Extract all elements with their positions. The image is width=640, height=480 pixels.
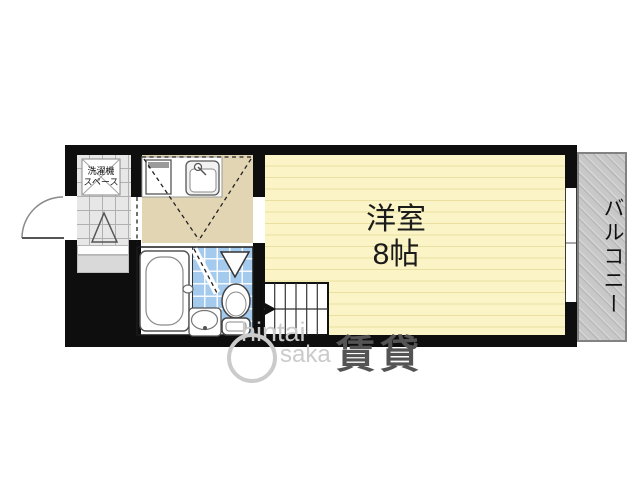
laundry-label-line1: 洗濯機 xyxy=(87,166,114,177)
main-room-name: 洋室 xyxy=(290,202,502,237)
wall-genkan-kitchen xyxy=(131,145,142,197)
wall-bath-left xyxy=(129,240,141,335)
kitchen-floor xyxy=(142,155,253,243)
genkan-step-lower xyxy=(77,255,129,273)
watermark-kanji: 賃貸 xyxy=(336,324,424,380)
entry-door-icon xyxy=(22,197,64,238)
wall-kitchen-room-upper xyxy=(253,145,265,197)
wall-right-bottom xyxy=(565,302,577,347)
bathtub-room-floor xyxy=(137,247,192,335)
sliding-window xyxy=(565,188,577,302)
balcony-label: バルコニー xyxy=(577,182,627,332)
watermark-circle-icon xyxy=(227,333,277,383)
main-room-size: 8帖 xyxy=(290,237,502,272)
watermark-brand-bottom: saka xyxy=(280,341,331,369)
wall-left-upper xyxy=(65,145,77,196)
floor-plan: 洋室 8帖 バルコニー 洗濯機 スペース hintai saka 賃貸 xyxy=(0,0,640,480)
laundry-space-label: 洗濯機 スペース xyxy=(82,159,120,195)
laundry-label-line2: スペース xyxy=(84,177,119,188)
genkan-step-upper xyxy=(77,245,129,255)
main-room-label: 洋室 8帖 xyxy=(290,202,502,272)
wall-right-top xyxy=(565,145,577,188)
